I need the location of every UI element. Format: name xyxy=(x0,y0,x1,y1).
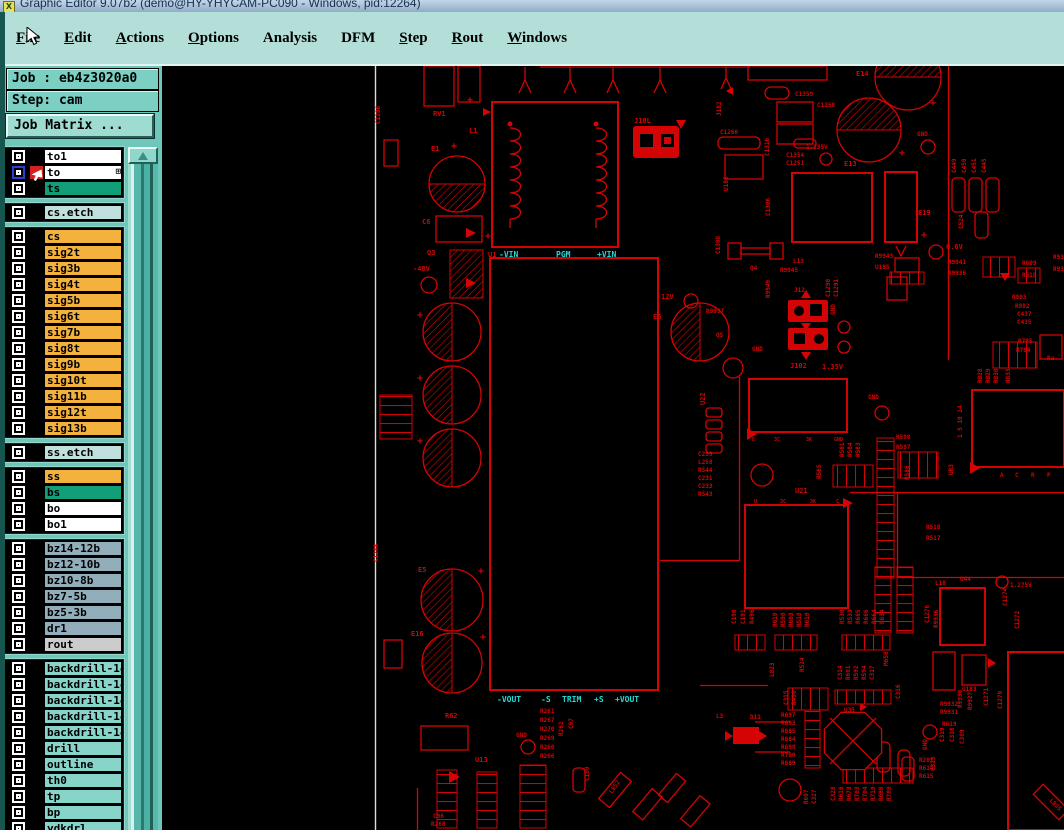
layer-row: bz7-5b xyxy=(6,589,122,604)
active-layer-slot xyxy=(30,206,44,219)
layer-name-ts[interactable]: ts xyxy=(44,181,122,196)
svg-text:C1354: C1354 xyxy=(786,152,804,159)
active-layer-slot xyxy=(30,310,44,323)
layer-checkbox-zone xyxy=(6,558,30,571)
svg-text:+VOUT: +VOUT xyxy=(615,695,639,704)
svg-text:C1258: C1258 xyxy=(817,102,835,109)
layer-visibility-checkbox[interactable] xyxy=(12,518,25,531)
svg-text:R607: R607 xyxy=(803,789,810,804)
layer-checkbox-zone xyxy=(6,374,30,387)
svg-text:C97: C97 xyxy=(568,718,575,729)
layer-name-backdrill-14[interactable]: backdrill-14 xyxy=(44,693,122,708)
svg-text:C318: C318 xyxy=(949,727,956,742)
svg-text:R685: R685 xyxy=(781,728,796,735)
svg-text:R684: R684 xyxy=(781,736,796,743)
layer-visibility-checkbox[interactable] xyxy=(12,758,25,771)
svg-text:GND: GND xyxy=(868,394,879,401)
svg-text:R270: R270 xyxy=(540,726,555,733)
layer-name-backdrill-14[interactable]: backdrill-14 xyxy=(44,677,122,692)
layer-row: bz5-3b xyxy=(6,605,122,620)
job-matrix-button[interactable]: Job Matrix ... xyxy=(6,114,154,138)
active-layer-slot xyxy=(30,422,44,435)
layer-visibility-checkbox[interactable] xyxy=(12,358,25,371)
layer-name-cs[interactable]: cs xyxy=(44,229,122,244)
graphic-editor-window: X Graphic Editor 9.07b2 (demo@HY-YHYCAM-… xyxy=(0,0,1064,830)
svg-text:R634: R634 xyxy=(879,609,886,624)
layer-visibility-checkbox[interactable] xyxy=(12,710,25,723)
layer-checkbox-zone xyxy=(6,182,30,195)
layer-row: bz14-12b xyxy=(6,541,122,556)
svg-text:R695: R695 xyxy=(878,786,885,801)
svg-text:C437: C437 xyxy=(1017,311,1032,318)
layer-name-sig8t[interactable]: sig8t xyxy=(44,341,122,356)
svg-text:J10L: J10L xyxy=(634,117,651,125)
svg-text:R261: R261 xyxy=(540,708,555,715)
layer-checkbox-zone xyxy=(6,542,30,555)
active-layer-slot xyxy=(30,774,44,787)
layer-visibility-checkbox[interactable] xyxy=(12,294,25,307)
layer-row: bz10-8b xyxy=(6,573,122,588)
layer-visibility-checkbox[interactable] xyxy=(12,822,25,830)
svg-text:3C: 3C xyxy=(774,437,780,443)
layer-visibility-checkbox[interactable] xyxy=(12,310,25,323)
svg-text:C: C xyxy=(1015,472,1019,479)
layer-list-scrollbar[interactable] xyxy=(128,147,158,830)
svg-text:-VIN: -VIN xyxy=(499,250,518,259)
svg-text:+: + xyxy=(480,632,486,643)
svg-text:R829: R829 xyxy=(985,368,992,383)
layer-name-sig5b[interactable]: sig5b xyxy=(44,293,122,308)
svg-text:R93: R93 xyxy=(1053,266,1064,273)
active-layer-slot xyxy=(30,662,44,675)
active-layer-slot xyxy=(30,470,44,483)
svg-text:R9931: R9931 xyxy=(940,709,958,716)
svg-text:P: P xyxy=(1047,472,1051,479)
svg-text:R610: R610 xyxy=(1022,272,1037,279)
layer-row: sig6t xyxy=(6,309,122,324)
svg-text:C445: C445 xyxy=(981,158,988,173)
layer-checkbox-zone xyxy=(6,822,30,830)
active-layer-slot xyxy=(30,518,44,531)
svg-text:C524: C524 xyxy=(958,214,965,229)
layer-group: cs.etch xyxy=(4,203,124,222)
layer-visibility-checkbox[interactable] xyxy=(12,278,25,291)
layer-row: cs xyxy=(6,229,122,244)
layer-row: sig13b xyxy=(6,421,122,436)
layer-row: cs.etch xyxy=(6,205,122,220)
svg-text:R517: R517 xyxy=(926,535,941,542)
layer-name-bz7-5b[interactable]: bz7-5b xyxy=(44,589,122,604)
svg-text:12V: 12V xyxy=(661,293,674,301)
svg-text:R9930: R9930 xyxy=(957,690,964,708)
layer-name-sig10t[interactable]: sig10t xyxy=(44,373,122,388)
svg-text:R544: R544 xyxy=(698,467,713,474)
layer-visibility-checkbox[interactable] xyxy=(12,606,25,619)
layer-visibility-checkbox[interactable] xyxy=(12,262,25,275)
svg-text:3K: 3K xyxy=(806,437,812,443)
layer-visibility-checkbox[interactable] xyxy=(12,422,25,435)
layer-visibility-checkbox[interactable] xyxy=(12,662,25,675)
active-layer-slot xyxy=(30,574,44,587)
menu-rout[interactable]: Rout xyxy=(452,12,484,64)
window-title: Graphic Editor 9.07b2 (demo@HY-YHYCAM-PC… xyxy=(20,0,421,10)
svg-text:C435: C435 xyxy=(1017,319,1032,326)
layer-name-dr1[interactable]: dr1 xyxy=(44,621,122,636)
active-layer-slot xyxy=(30,246,44,259)
layer-row: backdrill-14 xyxy=(6,709,122,724)
svg-text:3C: 3C xyxy=(780,499,786,505)
layer-row: bs xyxy=(6,485,122,500)
svg-text:R697: R697 xyxy=(781,712,796,719)
svg-text:R833: R833 xyxy=(1005,368,1012,383)
active-layer-slot xyxy=(30,446,44,459)
layer-name-backdrill-14[interactable]: backdrill-14 xyxy=(44,725,122,740)
svg-text:R594: R594 xyxy=(861,665,868,680)
menu-actions[interactable]: Actions xyxy=(116,12,164,64)
active-layer-slot xyxy=(30,726,44,739)
active-layer-slot xyxy=(30,542,44,555)
scrollbar-up-button[interactable] xyxy=(128,147,158,164)
layer-name-bz10-8b[interactable]: bz10-8b xyxy=(44,573,122,588)
svg-text:Q3: Q3 xyxy=(427,249,435,257)
active-layer-slot xyxy=(30,590,44,603)
active-layer-slot xyxy=(30,502,44,515)
svg-text:R610: R610 xyxy=(772,612,779,627)
svg-text:L1: L1 xyxy=(469,127,477,135)
layer-name-sig6t[interactable]: sig6t xyxy=(44,309,122,324)
svg-text:GND: GND xyxy=(830,304,837,315)
svg-text:J102: J102 xyxy=(790,362,807,370)
layer-row: ts xyxy=(6,181,122,196)
svg-text:R269: R269 xyxy=(540,735,555,742)
layer-checkbox-zone xyxy=(6,390,30,403)
svg-text:C1308: C1308 xyxy=(715,236,722,254)
layer-checkbox-zone xyxy=(6,774,30,787)
layer-checkbox-zone xyxy=(6,166,30,179)
layer-name-bz12-10b[interactable]: bz12-10b xyxy=(44,557,122,572)
menu-options[interactable]: Options xyxy=(188,12,239,64)
layer-checkbox-zone xyxy=(6,342,30,355)
layer-name-bz5-3b[interactable]: bz5-3b xyxy=(44,605,122,620)
active-layer-slot xyxy=(30,742,44,755)
svg-text:E16: E16 xyxy=(411,630,424,638)
svg-text:+S: +S xyxy=(594,695,604,704)
svg-text:C1266: C1266 xyxy=(720,129,738,136)
svg-text:R583: R583 xyxy=(855,442,862,457)
layer-visibility-checkbox[interactable] xyxy=(12,470,25,483)
layer-row: sig4t xyxy=(6,277,122,292)
svg-text:E5: E5 xyxy=(418,566,426,574)
menu-step[interactable]: Step xyxy=(399,12,427,64)
svg-text:C1290: C1290 xyxy=(825,279,832,297)
layer-checkbox-zone xyxy=(6,502,30,515)
svg-text:R689: R689 xyxy=(781,760,796,767)
svg-text:C190: C190 xyxy=(731,609,738,624)
svg-text:GND: GND xyxy=(922,739,929,750)
svg-text:R665: R665 xyxy=(855,609,862,624)
active-layer-slot xyxy=(30,326,44,339)
svg-text:R693: R693 xyxy=(781,720,796,727)
layer-row: drill xyxy=(6,741,122,756)
layer-checkbox-zone xyxy=(6,470,30,483)
svg-text:1.35V: 1.35V xyxy=(822,363,844,371)
layer-checkbox-zone xyxy=(6,358,30,371)
layer-row: rout xyxy=(6,637,122,652)
layer-visibility-checkbox[interactable] xyxy=(12,342,25,355)
layer-row: bo xyxy=(6,501,122,516)
pcb-canvas[interactable]: RV1L1E1C6Q3-48VU1E5E16R62U13GNDC96R268R2… xyxy=(162,66,1064,830)
svg-text:C1306: C1306 xyxy=(765,198,772,216)
layer-checkbox-zone xyxy=(6,662,30,675)
svg-text:L3: L3 xyxy=(716,713,724,720)
svg-text:R803: R803 xyxy=(1012,294,1027,301)
svg-text:R610: R610 xyxy=(804,612,811,627)
svg-text:R533: R533 xyxy=(847,609,854,624)
active-layer-slot xyxy=(30,822,44,830)
scrollbar-thumb[interactable] xyxy=(128,164,158,830)
layer-name-backdrill-14[interactable]: backdrill-14 xyxy=(44,709,122,724)
svg-text:C1359: C1359 xyxy=(795,91,813,98)
layer-visibility-checkbox[interactable] xyxy=(12,486,25,499)
svg-text:R9927: R9927 xyxy=(967,692,974,710)
svg-text:R592: R592 xyxy=(853,665,860,680)
mouse-cursor-icon xyxy=(26,27,44,47)
svg-text:Q4: Q4 xyxy=(750,265,758,272)
layer-visibility-checkbox[interactable] xyxy=(12,774,25,787)
up-arrow-icon xyxy=(138,152,148,160)
svg-text:J12: J12 xyxy=(794,287,805,294)
svg-text:U185: U185 xyxy=(875,264,890,271)
layer-checkbox-zone xyxy=(6,590,30,603)
svg-text:L13: L13 xyxy=(793,258,804,265)
layer-visibility-checkbox[interactable] xyxy=(12,390,25,403)
active-layer-slot xyxy=(30,150,44,163)
layer-name-sig4t[interactable]: sig4t xyxy=(44,277,122,292)
svg-text:E6: E6 xyxy=(653,313,661,321)
layer-visibility-checkbox[interactable] xyxy=(12,558,25,571)
svg-text:U13: U13 xyxy=(475,756,488,764)
layer-visibility-checkbox[interactable] xyxy=(12,246,25,259)
svg-text:R581: R581 xyxy=(839,442,846,457)
layer-row: backdrill-14 xyxy=(6,661,122,676)
layer-name-cs.etch[interactable]: cs.etch xyxy=(44,205,122,220)
svg-text:C1272: C1272 xyxy=(1014,611,1021,629)
svg-text:C1291: C1291 xyxy=(833,279,840,297)
layer-checkbox-zone xyxy=(6,790,30,803)
layer-row: bo1 xyxy=(6,517,122,532)
layer-name-to[interactable]: to⊞ xyxy=(44,165,122,180)
svg-text:R584: R584 xyxy=(847,442,854,457)
svg-text:C233: C233 xyxy=(698,483,713,490)
layer-group: backdrill-14backdrill-14backdrill-14back… xyxy=(4,659,124,830)
layer-checkbox-zone xyxy=(6,758,30,771)
svg-text:C1271: C1271 xyxy=(983,688,990,706)
svg-text:R802: R802 xyxy=(1015,303,1030,310)
layer-visibility-checkbox[interactable] xyxy=(12,150,25,163)
layer-name-drill[interactable]: drill xyxy=(44,741,122,756)
layer-checkbox-zone xyxy=(6,694,30,707)
layer-name-bo1[interactable]: bo1 xyxy=(44,517,122,532)
layer-visibility-checkbox[interactable] xyxy=(12,182,25,195)
layer-name-sig13b[interactable]: sig13b xyxy=(44,421,122,436)
svg-text:D11: D11 xyxy=(750,714,761,721)
layer-visibility-checkbox[interactable] xyxy=(12,206,25,219)
svg-text:R784: R784 xyxy=(1016,347,1031,354)
svg-text:R543: R543 xyxy=(698,491,713,498)
layer-name-bp[interactable]: bp xyxy=(44,805,122,820)
layer-checkbox-zone xyxy=(6,486,30,499)
svg-text:C449: C449 xyxy=(951,158,958,173)
svg-text:L852: L852 xyxy=(608,779,622,795)
layer-visibility-checkbox[interactable] xyxy=(12,230,25,243)
layer-name-bo[interactable]: bo xyxy=(44,501,122,516)
svg-text:C319: C319 xyxy=(939,727,946,742)
layer-row: backdrill-14 xyxy=(6,725,122,740)
layer-name-rout[interactable]: rout xyxy=(44,637,122,652)
menu-windows[interactable]: Windows xyxy=(507,12,567,64)
svg-text:PGM: PGM xyxy=(556,250,571,259)
svg-text:C309: C309 xyxy=(959,729,966,744)
svg-text:R785: R785 xyxy=(1018,338,1033,345)
svg-text:C191: C191 xyxy=(740,609,747,624)
svg-text:R518: R518 xyxy=(926,524,941,531)
layer-visibility-checkbox[interactable] xyxy=(12,502,25,515)
layer-visibility-checkbox[interactable] xyxy=(12,622,25,635)
svg-text:C314: C314 xyxy=(837,665,844,680)
layer-row: ss.etch xyxy=(6,445,122,460)
layer-name-th0[interactable]: th0 xyxy=(44,773,122,788)
active-layer-slot xyxy=(30,406,44,419)
active-layer-slot xyxy=(30,342,44,355)
layer-name-sig12t[interactable]: sig12t xyxy=(44,405,122,420)
layer-visibility-checkbox[interactable] xyxy=(12,374,25,387)
svg-text:C315: C315 xyxy=(783,690,790,705)
step-field: Step: cam xyxy=(6,90,159,112)
layer-visibility-checkbox[interactable] xyxy=(12,742,25,755)
svg-text:R9936: R9936 xyxy=(933,610,940,628)
layer-visibility-checkbox[interactable] xyxy=(12,166,25,179)
svg-text:1.275V: 1.275V xyxy=(1010,582,1032,589)
svg-text:C100: C100 xyxy=(584,766,591,781)
layer-checkbox-zone xyxy=(6,742,30,755)
svg-text:R: R xyxy=(1031,472,1035,479)
layer-visibility-checkbox[interactable] xyxy=(12,806,25,819)
layer-name-backdrill-14[interactable]: backdrill-14 xyxy=(44,661,122,676)
svg-text:R703: R703 xyxy=(854,786,861,801)
active-layer-slot xyxy=(30,678,44,691)
layer-name-sig3b[interactable]: sig3b xyxy=(44,261,122,276)
svg-text:+: + xyxy=(467,95,473,106)
layer-name-ss.etch[interactable]: ss.etch xyxy=(44,445,122,460)
svg-text:R666: R666 xyxy=(863,609,870,624)
svg-text:GND: GND xyxy=(834,437,843,443)
layer-visibility-checkbox[interactable] xyxy=(12,678,25,691)
svg-text:U35: U35 xyxy=(844,707,855,714)
menu-analysis[interactable]: Analysis xyxy=(263,12,317,64)
layer-checkbox-zone xyxy=(6,150,30,163)
svg-text:+: + xyxy=(899,148,905,159)
layer-visibility-checkbox[interactable] xyxy=(12,790,25,803)
layer-row: ydkdrl xyxy=(6,821,122,830)
layer-name-sig2t[interactable]: sig2t xyxy=(44,245,122,260)
active-layer-slot xyxy=(30,230,44,243)
svg-text:C: C xyxy=(836,499,839,505)
layer-visibility-checkbox[interactable] xyxy=(12,694,25,707)
svg-text:E: E xyxy=(752,437,755,443)
layer-checkbox-zone xyxy=(6,294,30,307)
svg-text:Q5: Q5 xyxy=(716,332,724,339)
active-layer-slot xyxy=(30,606,44,619)
svg-text:J182: J182 xyxy=(716,101,723,116)
layer-visibility-checkbox[interactable] xyxy=(12,326,25,339)
menubar: FileEditActionsOptionsAnalysisDFMStepRou… xyxy=(0,12,1064,66)
layer-row: sig12t xyxy=(6,405,122,420)
layer-visibility-checkbox[interactable] xyxy=(12,638,25,651)
svg-text:R262: R262 xyxy=(558,721,565,736)
svg-text:R709: R709 xyxy=(886,786,893,801)
layer-name-sig9b[interactable]: sig9b xyxy=(44,357,122,372)
svg-text:+: + xyxy=(451,141,457,152)
layer-name-ydkdrl[interactable]: ydkdrl xyxy=(44,821,122,830)
svg-text:C259: C259 xyxy=(698,451,713,458)
layer-name-sig11b[interactable]: sig11b xyxy=(44,389,122,404)
layer-visibility-checkbox[interactable] xyxy=(12,726,25,739)
layer-name-bz14-12b[interactable]: bz14-12b xyxy=(44,541,122,556)
layer-checkbox-zone xyxy=(6,574,30,587)
layer-name-tp[interactable]: tp xyxy=(44,789,122,804)
svg-text:U22: U22 xyxy=(699,392,707,405)
svg-text:M658: M658 xyxy=(883,651,890,666)
svg-text:C328: C328 xyxy=(830,786,837,801)
layer-checkbox-zone xyxy=(6,726,30,739)
svg-text:R590: R590 xyxy=(780,612,787,627)
pcb-artwork: RV1L1E1C6Q3-48VU1E5E16R62U13GNDC96R268R2… xyxy=(162,66,1064,830)
layer-visibility-checkbox[interactable] xyxy=(12,590,25,603)
svg-text:Ra: Ra xyxy=(1047,355,1055,362)
svg-text:+: + xyxy=(417,310,423,321)
svg-text:GND: GND xyxy=(752,346,763,353)
layer-name-ss[interactable]: ss xyxy=(44,469,122,484)
active-layer-slot xyxy=(30,486,44,499)
layer-visibility-checkbox[interactable] xyxy=(12,574,25,587)
layer-name-sig7b[interactable]: sig7b xyxy=(44,325,122,340)
svg-text:UR3: UR3 xyxy=(948,464,955,475)
active-layer-slot xyxy=(30,638,44,651)
svg-text:C317: C317 xyxy=(869,665,876,680)
layer-row: backdrill-14 xyxy=(6,677,122,692)
svg-text:R530: R530 xyxy=(839,609,846,624)
layer-name-bs[interactable]: bs xyxy=(44,485,122,500)
layer-row: backdrill-14 xyxy=(6,693,122,708)
layer-visibility-checkbox[interactable] xyxy=(12,406,25,419)
svg-text:C1316: C1316 xyxy=(764,138,771,156)
active-layer-slot xyxy=(30,166,44,179)
menu-edit[interactable]: Edit xyxy=(64,12,92,64)
active-layer-slot xyxy=(30,694,44,707)
layer-name-outline[interactable]: outline xyxy=(44,757,122,772)
svg-text:R609: R609 xyxy=(1022,260,1037,267)
active-layer-slot xyxy=(30,790,44,803)
layer-visibility-checkbox[interactable] xyxy=(12,542,25,555)
layer-name-to1[interactable]: to1 xyxy=(44,149,122,164)
menu-dfm[interactable]: DFM xyxy=(341,12,375,64)
svg-text:R518: R518 xyxy=(796,612,803,627)
svg-text:L10: L10 xyxy=(935,580,946,587)
svg-text:E19: E19 xyxy=(918,209,931,217)
layer-visibility-checkbox[interactable] xyxy=(12,446,25,459)
svg-text:+: + xyxy=(921,230,927,241)
svg-text:0.6V: 0.6V xyxy=(946,243,964,251)
